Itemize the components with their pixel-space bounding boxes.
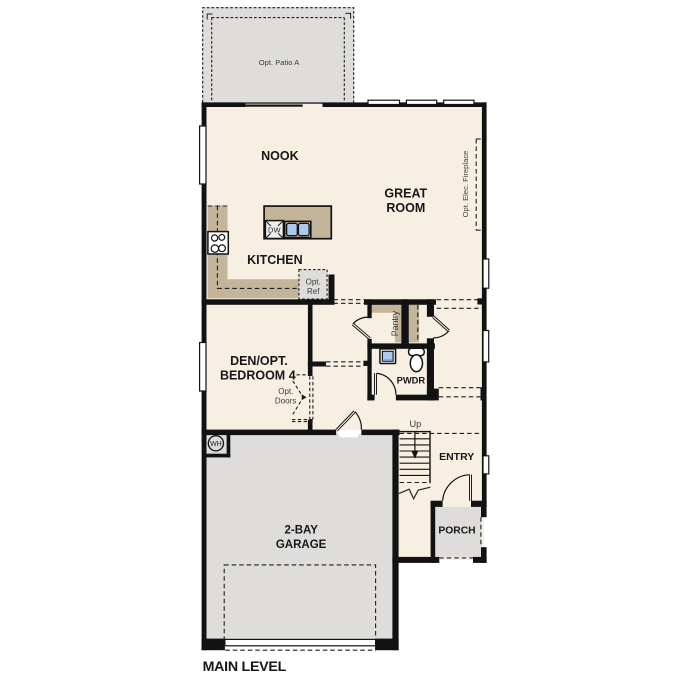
svg-text:ENTRY: ENTRY [439,451,474,463]
svg-text:PWDR: PWDR [397,375,426,386]
svg-text:Opt.: Opt. [306,277,321,286]
svg-text:Up: Up [410,419,422,429]
svg-text:2-BAY: 2-BAY [284,524,318,536]
svg-text:DW: DW [268,225,281,234]
svg-text:BEDROOM 4: BEDROOM 4 [220,369,296,383]
svg-text:Opt. Elec. Fireplace: Opt. Elec. Fireplace [461,151,470,218]
svg-text:Opt. Patio A: Opt. Patio A [259,58,300,67]
svg-text:Ref: Ref [307,287,320,296]
svg-text:GREAT: GREAT [384,187,427,201]
svg-text:Pantry: Pantry [390,310,400,336]
svg-text:PORCH: PORCH [438,525,475,536]
svg-text:NOOK: NOOK [261,149,299,163]
svg-text:KITCHEN: KITCHEN [247,253,303,267]
svg-text:ROOM: ROOM [386,201,425,215]
svg-text:DEN/OPT.: DEN/OPT. [230,354,288,368]
svg-text:GARAGE: GARAGE [276,539,327,551]
svg-text:MAIN LEVEL: MAIN LEVEL [203,659,287,675]
svg-text:Opt.: Opt. [278,387,293,396]
svg-text:Doors: Doors [275,396,296,405]
svg-text:WH: WH [210,441,222,448]
